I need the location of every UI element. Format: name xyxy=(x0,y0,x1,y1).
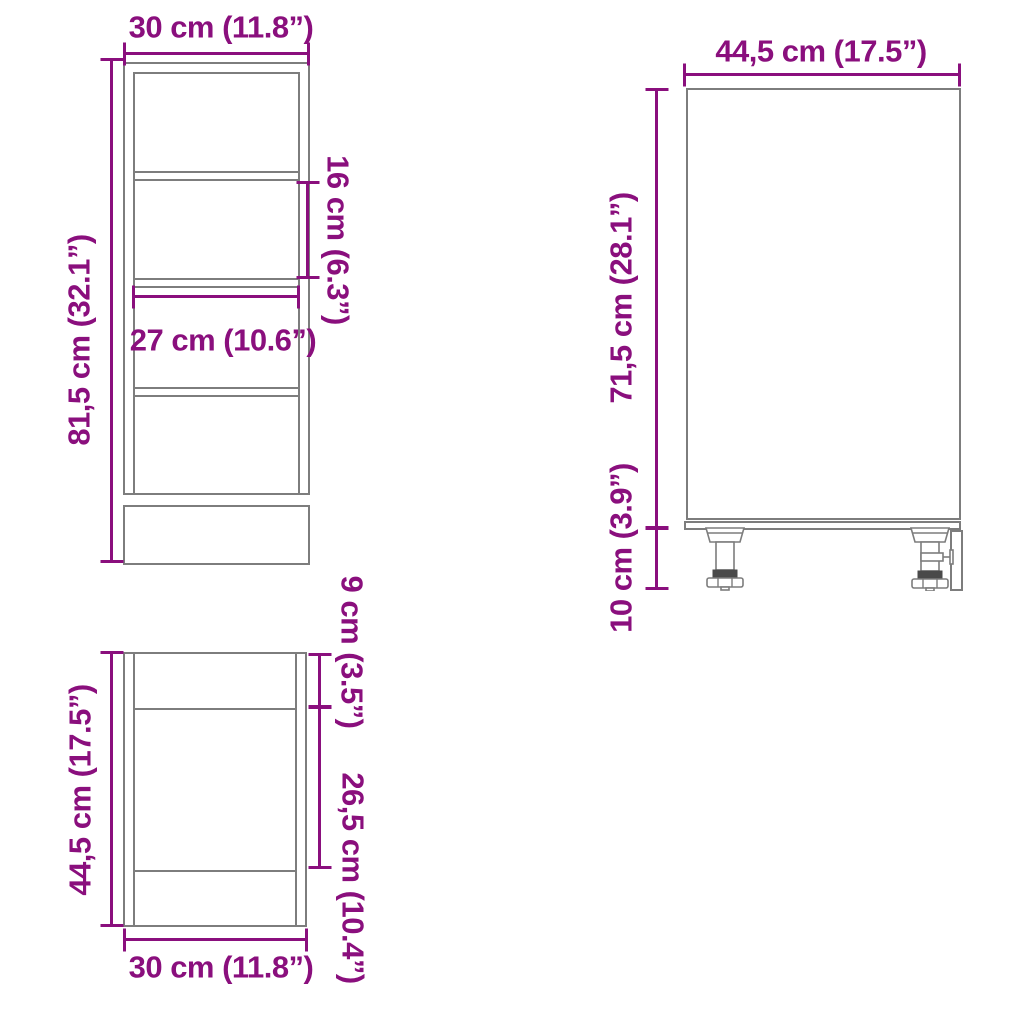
back-rail-line xyxy=(133,870,297,872)
front-height-label: 81,5 cm (32.1”) xyxy=(64,234,95,445)
top-view-outline xyxy=(123,652,307,927)
top-depth-dimension-line xyxy=(110,651,113,927)
top-panel-line xyxy=(133,72,300,74)
interior-width-dimension-line xyxy=(132,295,300,298)
front-rail-line xyxy=(133,708,297,710)
front-section-dimension-line xyxy=(318,653,321,708)
body-height-dimension-line xyxy=(655,88,658,529)
front-cabinet-plinth xyxy=(123,505,310,565)
shelf-spacing-label: 16 cm (6.3”) xyxy=(323,155,354,325)
shelf-spacing-dimension-line xyxy=(306,181,309,279)
side-depth-label: 44,5 cm (17.5”) xyxy=(715,36,926,67)
side-depth-dimension-line xyxy=(683,73,961,76)
left-side-panel-line xyxy=(133,654,135,925)
shelf xyxy=(133,387,300,397)
leg-height-dimension-line xyxy=(655,527,658,590)
right-side-panel-line xyxy=(295,654,297,925)
top-width-dimension-line xyxy=(123,938,308,941)
front-width-label: 30 cm (11.8”) xyxy=(129,12,314,43)
shelf xyxy=(133,171,300,181)
body-height-label: 71,5 cm (28.1”) xyxy=(606,192,637,403)
shelf xyxy=(133,278,300,288)
front-height-dimension-line xyxy=(110,58,113,563)
front-cabinet-carcass xyxy=(123,62,310,495)
front-width-dimension-line xyxy=(123,52,310,55)
side-panel-outline xyxy=(686,88,961,520)
interior-width-label: 27 cm (10.6”) xyxy=(130,325,317,356)
top-width-label: 30 cm (11.8”) xyxy=(129,952,314,983)
adjustable-leg-front-icon xyxy=(705,527,745,591)
middle-section-dimension-line xyxy=(318,706,321,869)
dimension-diagram: 30 cm (11.8”) 81,5 cm (32.1”) 16 cm (6.3… xyxy=(0,0,1024,1024)
top-depth-label: 44,5 cm (17.5”) xyxy=(65,684,96,895)
adjustable-leg-back-icon xyxy=(908,527,956,591)
leg-height-label: 10 cm (3.9”) xyxy=(606,463,637,633)
front-section-label: 9 cm (3.5”) xyxy=(337,575,368,728)
middle-section-label: 26,5 cm (10.4”) xyxy=(338,772,369,983)
